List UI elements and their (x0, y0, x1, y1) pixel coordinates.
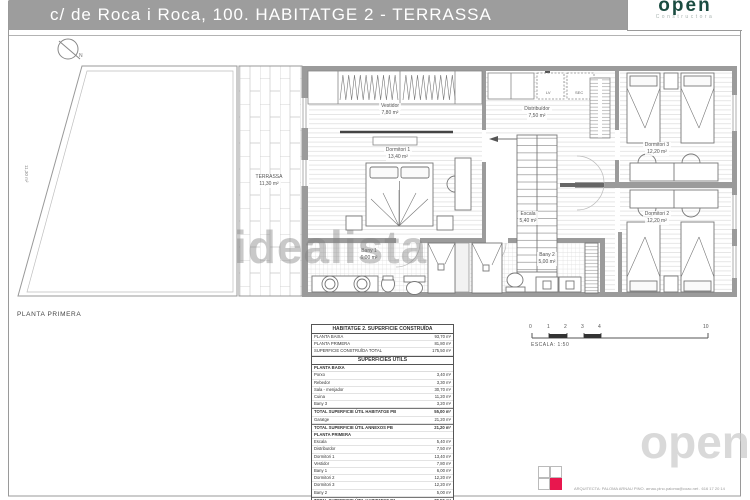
logo-subtext: Constructora (628, 14, 742, 21)
scale-label: ESCALA: 1:50 (531, 342, 569, 348)
floor-title: PLANTA PRIMERA (17, 311, 81, 318)
idealista-watermark: idealista (234, 224, 427, 270)
table-row: Porxo3,40 m² (312, 372, 453, 379)
table-row: Vestidor7,80 m² (312, 461, 453, 468)
plot-outline (18, 66, 237, 296)
table-subheader: PLANTA BAIXA (312, 365, 453, 372)
plan-sheet: c/ de Roca i Roca, 100. HABITATGE 2 - TE… (0, 0, 750, 500)
table-row: Distribuïdor7,50 m² (312, 446, 453, 453)
room-label-distribuidor: Distribuïdor 7,50 m² (507, 106, 567, 120)
scale-bar (532, 333, 708, 338)
table-row: Escala5,40 m² (312, 439, 453, 446)
room-label-bany2: Bany 2 5,00 m² (517, 252, 577, 266)
door-leaf (560, 183, 604, 187)
architect-credit: ARQUITECTA: PALOMA ARNAU PINO. arnau.pin… (574, 486, 749, 491)
table-section-title: SUPERFICIES ÚTILS (312, 356, 453, 366)
open-watermark: open (640, 419, 750, 465)
room-label-dormitori2: Dormitori 2 12,20 m² (627, 211, 687, 225)
closet-label-sec: SEC (575, 90, 583, 95)
room-label-escala: Escala 5,40 m² (498, 211, 558, 225)
table-row: Bany 25,00 m² (312, 490, 453, 497)
closet-label-lv: LV (546, 90, 551, 95)
table-row: Sala - menjador30,70 m² (312, 387, 453, 394)
table-subheader: PLANTA PRIMERA (312, 432, 453, 439)
table-total-row: TOTAL SUPERFICIE ÚTIL ANNEXOS PB21,20 m² (312, 424, 453, 432)
title-bar: c/ de Roca i Roca, 100. HABITATGE 2 - TE… (9, 0, 627, 30)
scale-tick: 10 (703, 324, 709, 330)
table-total-row: TOTAL SUPERFICIE ÚTIL HABITATGE PB55,00 … (312, 408, 453, 416)
table-title: HABITATGE 2. SUPERFICIE CONSTRUÏDA (312, 325, 453, 334)
table-row: Bany 16,00 m² (312, 468, 453, 475)
table-row: Cuina11,20 m² (312, 394, 453, 401)
table-row: Garatge21,20 m² (312, 417, 453, 424)
table-row: Dormitori 212,20 m² (312, 475, 453, 482)
scale-tick: 3 (581, 324, 584, 330)
scale-tick: 1 (547, 324, 550, 330)
table-row: PLANTA BAIXA93,70 m² (312, 334, 453, 341)
duct-shaft (455, 243, 469, 292)
room-label-dormitori1: Dormitori 1 13,40 m² (368, 147, 428, 161)
scale-tick: 2 (564, 324, 567, 330)
company-logo: ópen Constructora (627, 0, 742, 31)
scale-tick: 4 (598, 324, 601, 330)
table-row: PLANTA PRIMERA81,80 m² (312, 341, 453, 348)
architect-logo (538, 466, 564, 492)
north-label: N (79, 53, 83, 59)
logo-text: ópen (628, 0, 742, 14)
table-row: SUPERFICIE CONSTRUÏDA TOTAL175,50 m² (312, 348, 453, 355)
scale-tick: 0 (529, 324, 532, 330)
table-row: Bany 33,20 m² (312, 401, 453, 408)
north-arrow-icon (58, 39, 80, 59)
table-row: Rebedor3,30 m² (312, 380, 453, 387)
table-row: Dormitori 113,40 m² (312, 454, 453, 461)
room-label-terrassa: TERRASSA 11,30 m² (239, 174, 299, 188)
room-label-vestidor: Vestidor 7,80 m² (360, 103, 420, 117)
page-title: c/ de Roca i Roca, 100. HABITATGE 2 - TE… (50, 5, 492, 25)
table-row: Dormitori 312,20 m² (312, 482, 453, 489)
side-dimension-label: 11,30 m² (24, 165, 29, 182)
room-label-dormitori3: Dormitori 3 12,20 m² (627, 142, 687, 156)
surface-table: HABITATGE 2. SUPERFICIE CONSTRUÏDA PLANT… (311, 324, 454, 500)
